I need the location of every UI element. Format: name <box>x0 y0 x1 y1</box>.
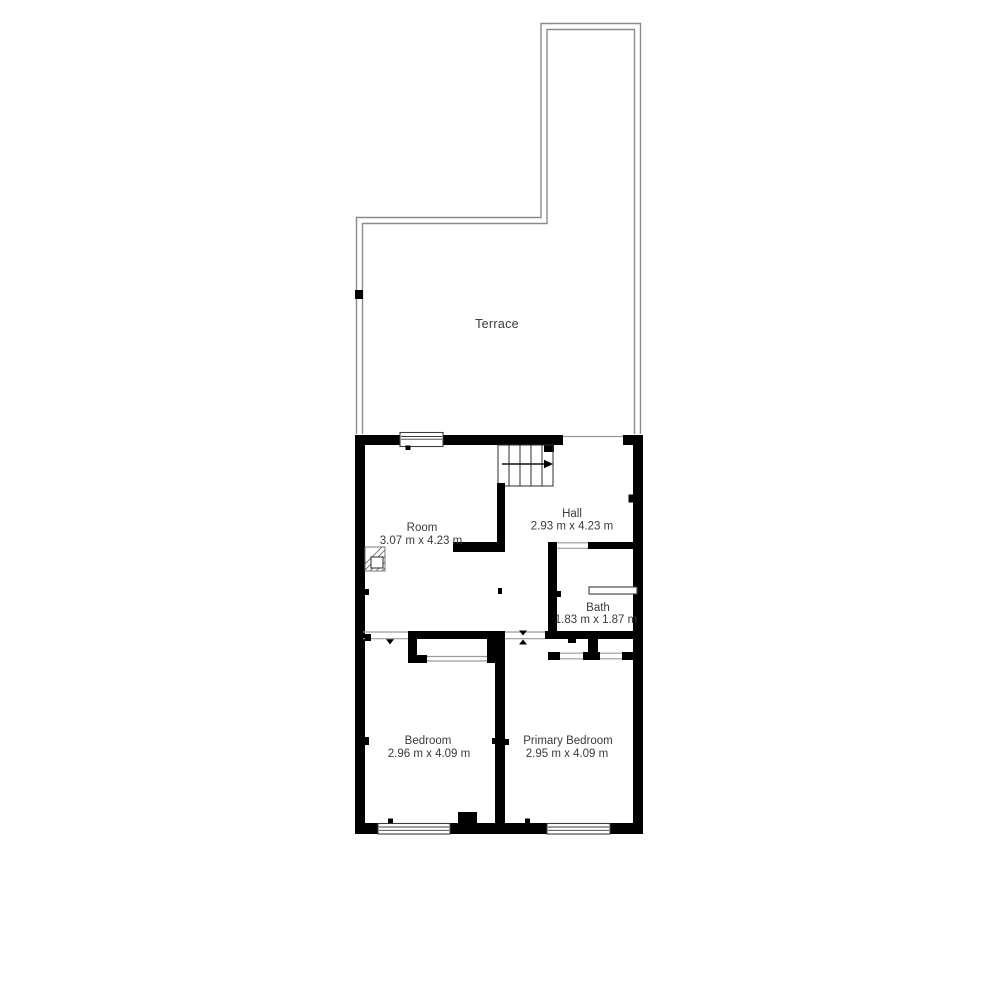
hall-label: Hall <box>562 508 582 520</box>
primary-bedroom-label: Primary Bedroom <box>523 735 612 747</box>
interior-walls <box>363 483 643 823</box>
hall-dims: 2.93 m x 4.23 m <box>531 521 613 533</box>
bottom-wall-segment <box>355 823 378 834</box>
terrace-label: Terrace <box>475 317 519 331</box>
top-wall-segment <box>623 435 643 445</box>
bedroom-window <box>378 819 450 835</box>
mid-wall <box>408 631 505 639</box>
bedroom-dims: 2.96 m x 4.09 m <box>388 748 470 760</box>
hall-wall-nub <box>629 495 634 503</box>
room-labels: Terrace Room 3.07 m x 4.23 m Hall 2.93 m… <box>380 317 637 760</box>
terrace-outline <box>355 24 641 437</box>
bedroom-dividing-wall <box>495 631 505 823</box>
bedroom-label: Bedroom <box>405 735 452 747</box>
bath-top-wall <box>588 542 643 549</box>
floor-plan-canvas: Terrace Room 3.07 m x 4.23 m Hall 2.93 m… <box>0 0 1000 1000</box>
bath-dims: 1.83 m x 1.87 m <box>555 614 637 626</box>
mid-wall <box>545 631 643 639</box>
left-wall <box>355 435 365 834</box>
bedroom-closet <box>408 639 495 663</box>
bath-shelf <box>589 587 637 594</box>
top-wall-segment <box>355 435 401 445</box>
opening-marker <box>386 639 394 644</box>
opening-marker <box>519 631 527 636</box>
stair-hall-wall <box>497 483 505 552</box>
room-label: Room <box>407 522 438 534</box>
chimney-pillar <box>458 812 477 824</box>
room-dims: 3.07 m x 4.23 m <box>380 535 462 547</box>
primary-bedroom-dims: 2.95 m x 4.09 m <box>526 748 608 760</box>
bottom-wall-segment <box>450 823 547 834</box>
bottom-wall-segment <box>610 823 643 834</box>
terrace-wall-post <box>355 290 363 299</box>
stair-arrow-head <box>544 460 553 468</box>
top-window <box>400 433 443 451</box>
opening-marker <box>519 640 527 645</box>
floor-plan: Terrace Room 3.07 m x 4.23 m Hall 2.93 m… <box>0 0 1000 1000</box>
bath-label: Bath <box>586 602 610 614</box>
primary-bedroom-wardrobe <box>548 639 635 660</box>
